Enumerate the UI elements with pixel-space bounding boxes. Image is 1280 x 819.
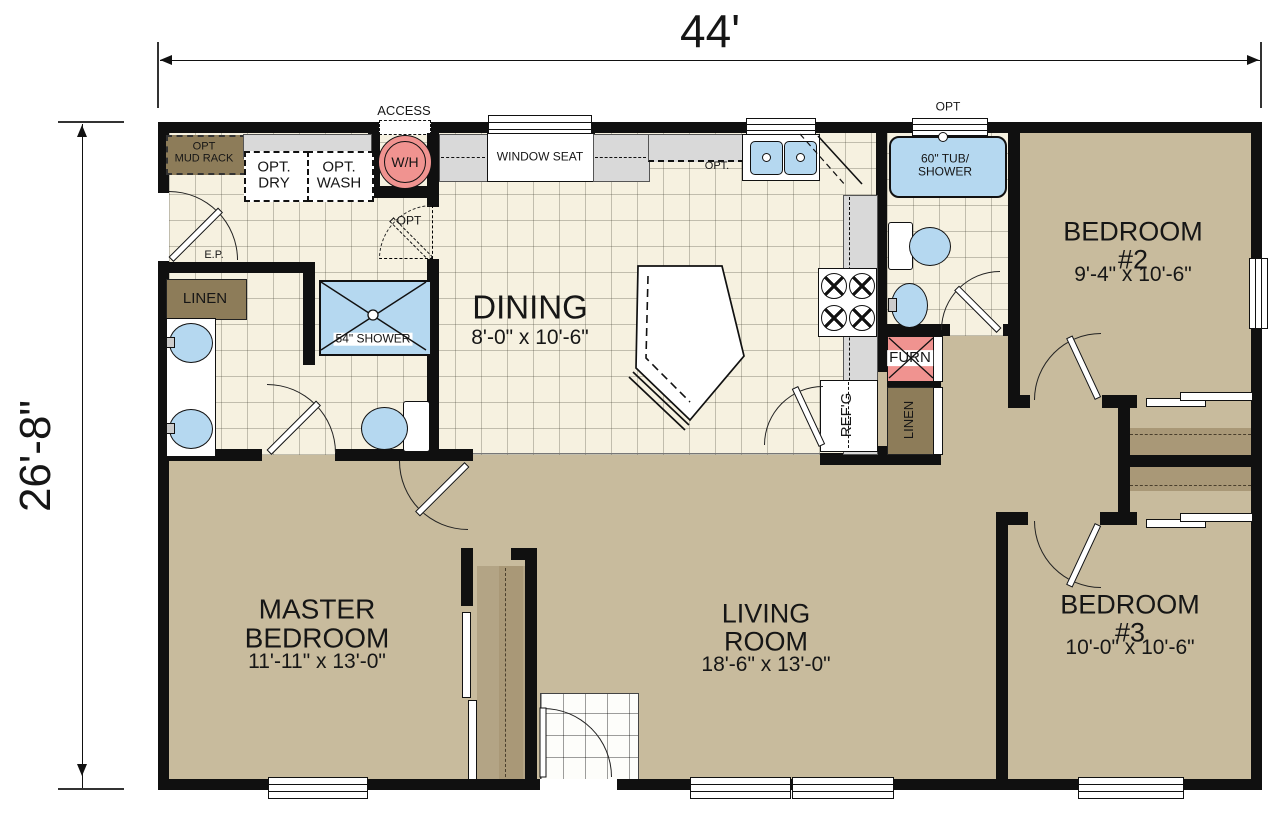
floor-plan: 44' 26'-8" OPT [0, 0, 1280, 819]
kitchen-island [636, 266, 744, 420]
shower-drain-icon [368, 310, 378, 320]
fixture-decorations [0, 0, 1280, 819]
corner-cabinet-line [818, 136, 862, 184]
